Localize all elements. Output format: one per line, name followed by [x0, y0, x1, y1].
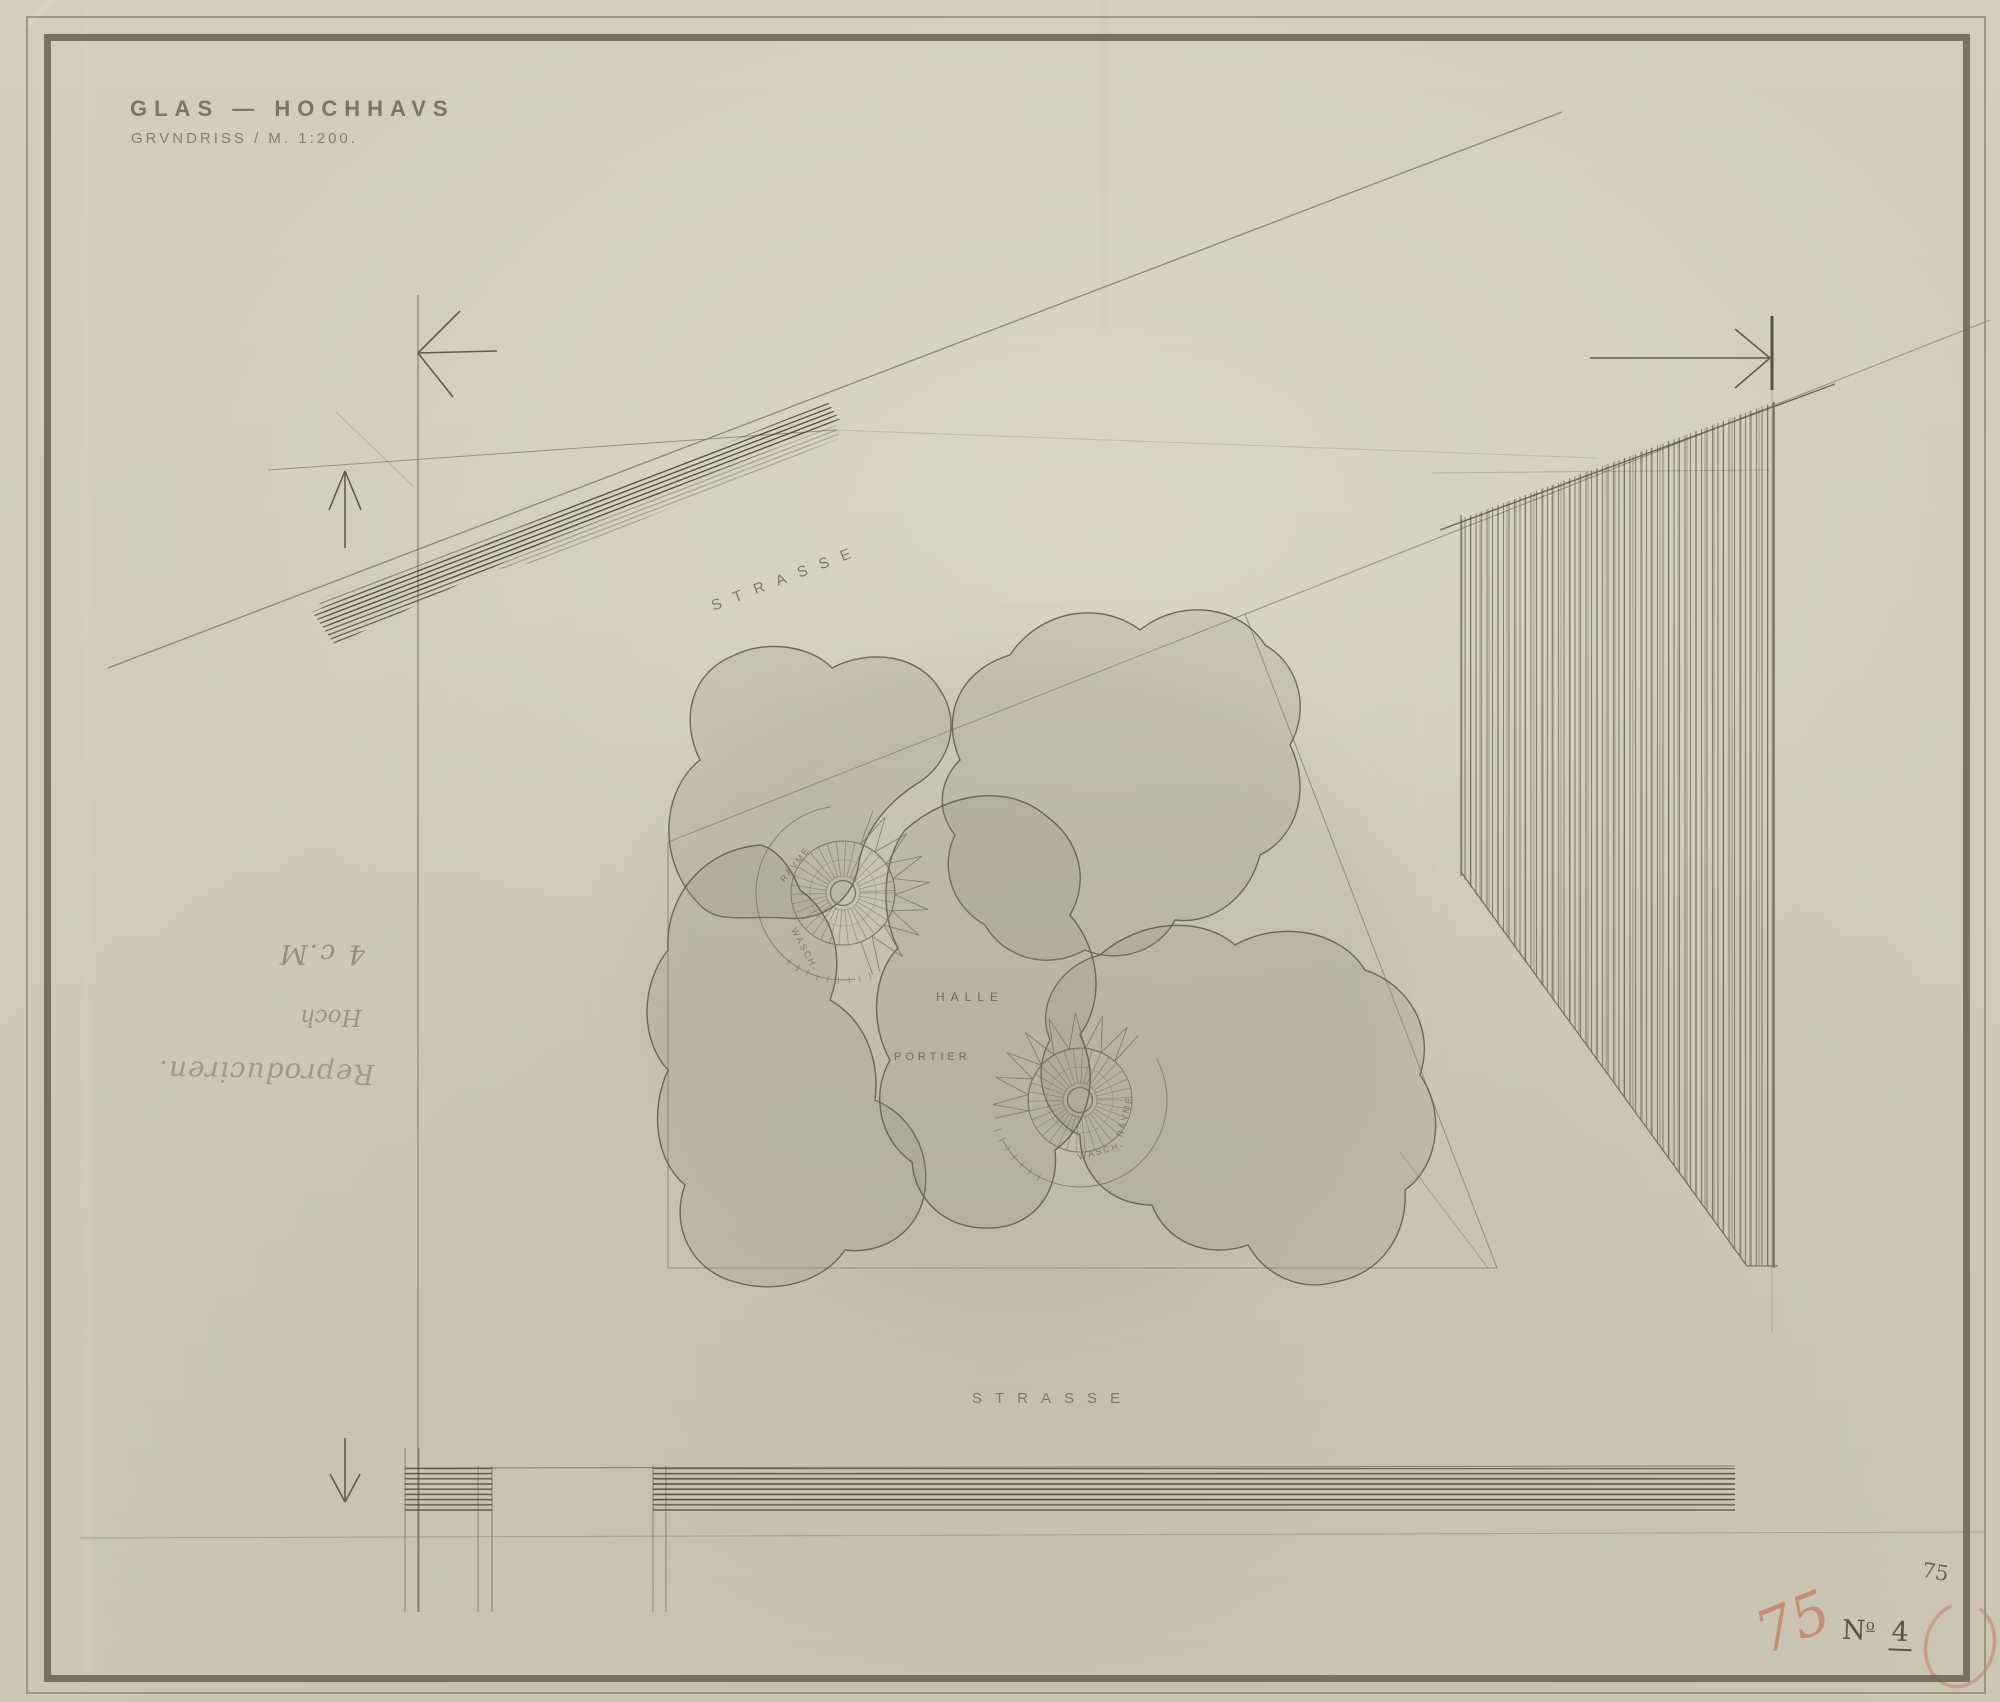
- street-label-bottom: STRASSE: [972, 1390, 1133, 1407]
- drawing-title: GLAS — HOCHHAVS: [130, 96, 455, 122]
- plate-number: No4: [1841, 1615, 1912, 1651]
- plate-number-digit: 4: [1888, 1616, 1912, 1651]
- note-height: Hoch: [300, 1004, 362, 1030]
- porter-label: PORTIER: [894, 1051, 971, 1063]
- note-reproduction: Reproduciren.: [158, 1054, 375, 1091]
- drawing-subtitle: GRVNDRISS / M. 1:200.: [131, 130, 358, 147]
- sheet-border-inner: [44, 34, 1970, 1682]
- drawing-sheet: GLAS — HOCHHAVS GRVNDRISS / M. 1:200. ST…: [0, 0, 2000, 1702]
- note-size: 4 c.M: [278, 938, 365, 969]
- pencil-number: 75: [1920, 1558, 1950, 1586]
- plate-number-prefix: N: [1842, 1615, 1867, 1647]
- plate-number-sup: o: [1866, 1616, 1876, 1634]
- hall-label: HALLE: [936, 990, 1004, 1004]
